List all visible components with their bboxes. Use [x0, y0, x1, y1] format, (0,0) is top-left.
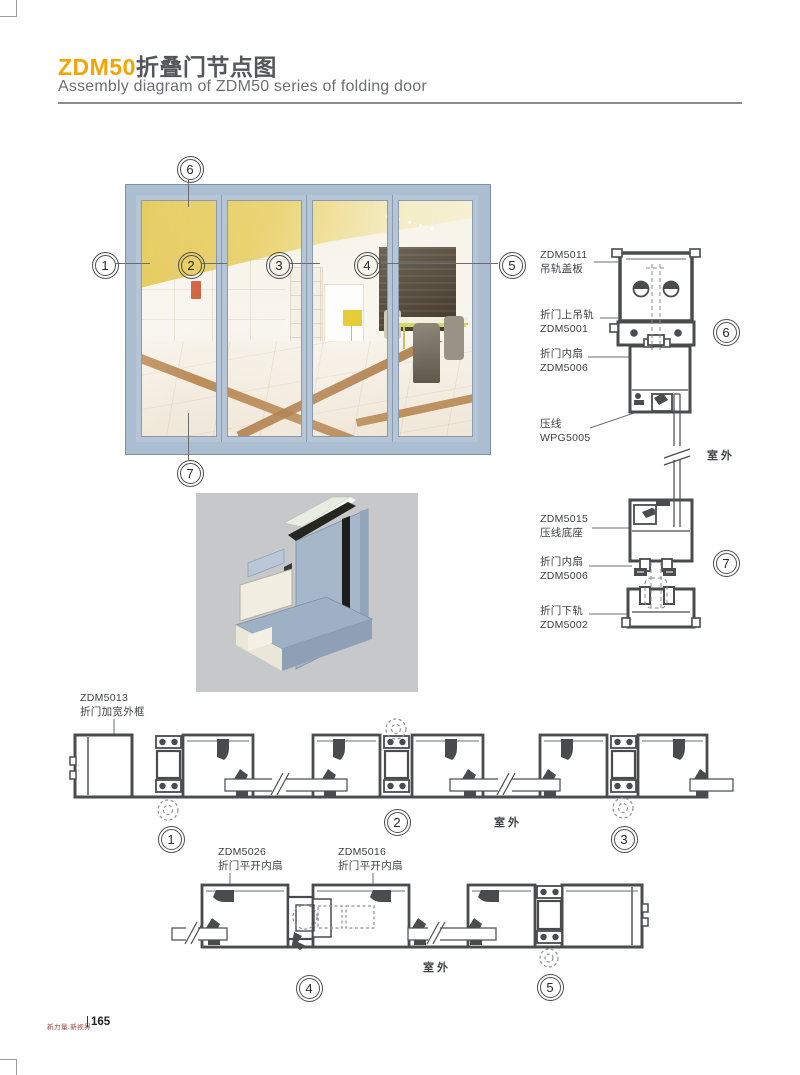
door-photo-scene — [136, 195, 478, 442]
folding-door-photo — [125, 184, 491, 455]
label-part: 折门加宽外框 — [80, 706, 145, 720]
callout-number: 6 — [716, 322, 737, 343]
callout-number: 3 — [614, 829, 635, 850]
callout-number: 7 — [180, 463, 201, 484]
callout-number: 5 — [540, 977, 561, 998]
callout-number: 1 — [95, 255, 116, 276]
page-title: ZDM50折叠门节点图 — [58, 48, 277, 82]
photo-callout-4: 4 — [354, 252, 381, 279]
label-code: ZDM5002 — [540, 619, 588, 633]
label-zdm5006-bottom: 折门内扇 ZDM5006 — [540, 556, 588, 583]
profile-3d-art — [196, 493, 418, 692]
page-number: |165 — [86, 1016, 110, 1028]
outdoor-label-row2: 室外 — [423, 959, 451, 975]
label-zdm5016: ZDM5016 折门平开内扇 — [338, 846, 403, 873]
photo-callout-1: 1 — [92, 252, 119, 279]
label-code: ZDM5011 — [540, 249, 587, 263]
header-divider — [58, 102, 742, 104]
leader-line-3 — [290, 263, 320, 264]
section-callout-7: 7 — [713, 550, 740, 577]
callout-number: 3 — [269, 255, 290, 276]
door-leaf-frame-1 — [136, 195, 222, 442]
label-zdm5011: ZDM5011 吊轨盖板 — [540, 249, 587, 276]
section-callout-5: 5 — [537, 974, 564, 1001]
photo-callout-2: 2 — [178, 252, 205, 279]
label-zdm5002: 折门下轨 ZDM5002 — [540, 605, 588, 632]
label-zdm5015: ZDM5015 压线底座 — [540, 513, 588, 540]
leader-line-2 — [202, 263, 227, 264]
outdoor-label-right: 室外 — [707, 447, 735, 463]
label-code: ZDM5016 — [338, 846, 403, 860]
photo-callout-6: 6 — [177, 156, 204, 183]
page-number-value: 165 — [91, 1016, 110, 1028]
leader-line-7 — [188, 413, 189, 460]
footer-slogan: 新力量.新视界 — [47, 1021, 91, 1031]
label-code: WPG5005 — [540, 432, 591, 446]
callout-number: 2 — [387, 812, 408, 833]
label-part: 吊轨盖板 — [540, 263, 587, 277]
label-part: 折门平开内扇 — [218, 860, 283, 874]
callout-number: 2 — [181, 255, 202, 276]
label-zdm5013: ZDM5013 折门加宽外框 — [80, 692, 145, 719]
label-code: ZDM5001 — [540, 323, 594, 337]
door-leaf-frame-3 — [307, 195, 393, 442]
callout-number: 6 — [180, 159, 201, 180]
photo-callout-5: 5 — [499, 252, 526, 279]
outdoor-label-row1: 室外 — [494, 814, 522, 830]
label-part: 折门上吊轨 — [540, 309, 594, 323]
section-callout-6: 6 — [713, 319, 740, 346]
profile-3d-render — [196, 493, 418, 692]
callout-number: 4 — [299, 978, 320, 999]
callout-number: 4 — [357, 255, 378, 276]
door-leaf-frame-4 — [393, 195, 479, 442]
label-code: ZDM5006 — [540, 570, 588, 584]
leader-line-1 — [116, 263, 150, 264]
label-zdm5006-top: 折门内扇 ZDM5006 — [540, 348, 588, 375]
label-part: 折门下轨 — [540, 605, 588, 619]
corner-mark-bottom-left — [0, 1059, 17, 1075]
photo-callout-3: 3 — [266, 252, 293, 279]
label-zdm5026: ZDM5026 折门平开内扇 — [218, 846, 283, 873]
series-model: ZDM50 — [58, 54, 136, 80]
callout-number: 5 — [502, 255, 523, 276]
callout-number: 7 — [716, 553, 737, 574]
page-number-divider: | — [86, 1016, 89, 1028]
title-chinese: 折叠门节点图 — [136, 54, 277, 80]
label-wpg5005: 压线 WPG5005 — [540, 418, 591, 445]
leader-line-4-5 — [378, 263, 498, 264]
label-code: ZDM5026 — [218, 846, 283, 860]
door-leaf-frame-2 — [222, 195, 308, 442]
corner-mark-top-left — [0, 0, 17, 17]
photo-callout-7: 7 — [177, 460, 204, 487]
callout-number: 1 — [161, 829, 182, 850]
label-part: 折门内扇 — [540, 348, 588, 362]
leader-line-6 — [188, 180, 189, 207]
section-callout-3: 3 — [611, 826, 638, 853]
section-callout-1: 1 — [158, 826, 185, 853]
label-code: ZDM5006 — [540, 362, 588, 376]
label-zdm5001: 折门上吊轨 ZDM5001 — [540, 309, 594, 336]
section-callout-4: 4 — [296, 975, 323, 1002]
label-part: 折门平开内扇 — [338, 860, 403, 874]
label-code: ZDM5015 — [540, 513, 588, 527]
section-callout-2: 2 — [384, 809, 411, 836]
label-part: 压线底座 — [540, 527, 588, 541]
page-subtitle: Assembly diagram of ZDM50 series of fold… — [58, 78, 427, 96]
label-part: 折门内扇 — [540, 556, 588, 570]
catalog-page: ZDM50折叠门节点图 Assembly diagram of ZDM50 se… — [0, 0, 800, 1075]
label-part: 压线 — [540, 418, 591, 432]
label-code: ZDM5013 — [80, 692, 145, 706]
